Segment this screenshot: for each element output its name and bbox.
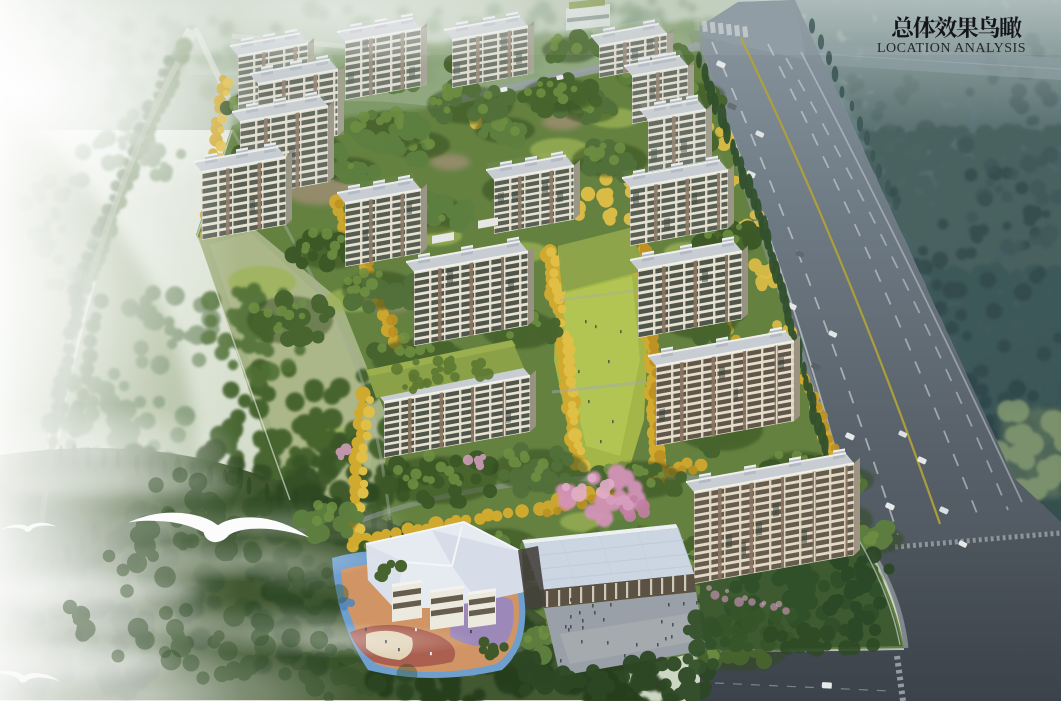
svg-text:LOCATION ANALYSIS: LOCATION ANALYSIS: [877, 41, 1026, 56]
